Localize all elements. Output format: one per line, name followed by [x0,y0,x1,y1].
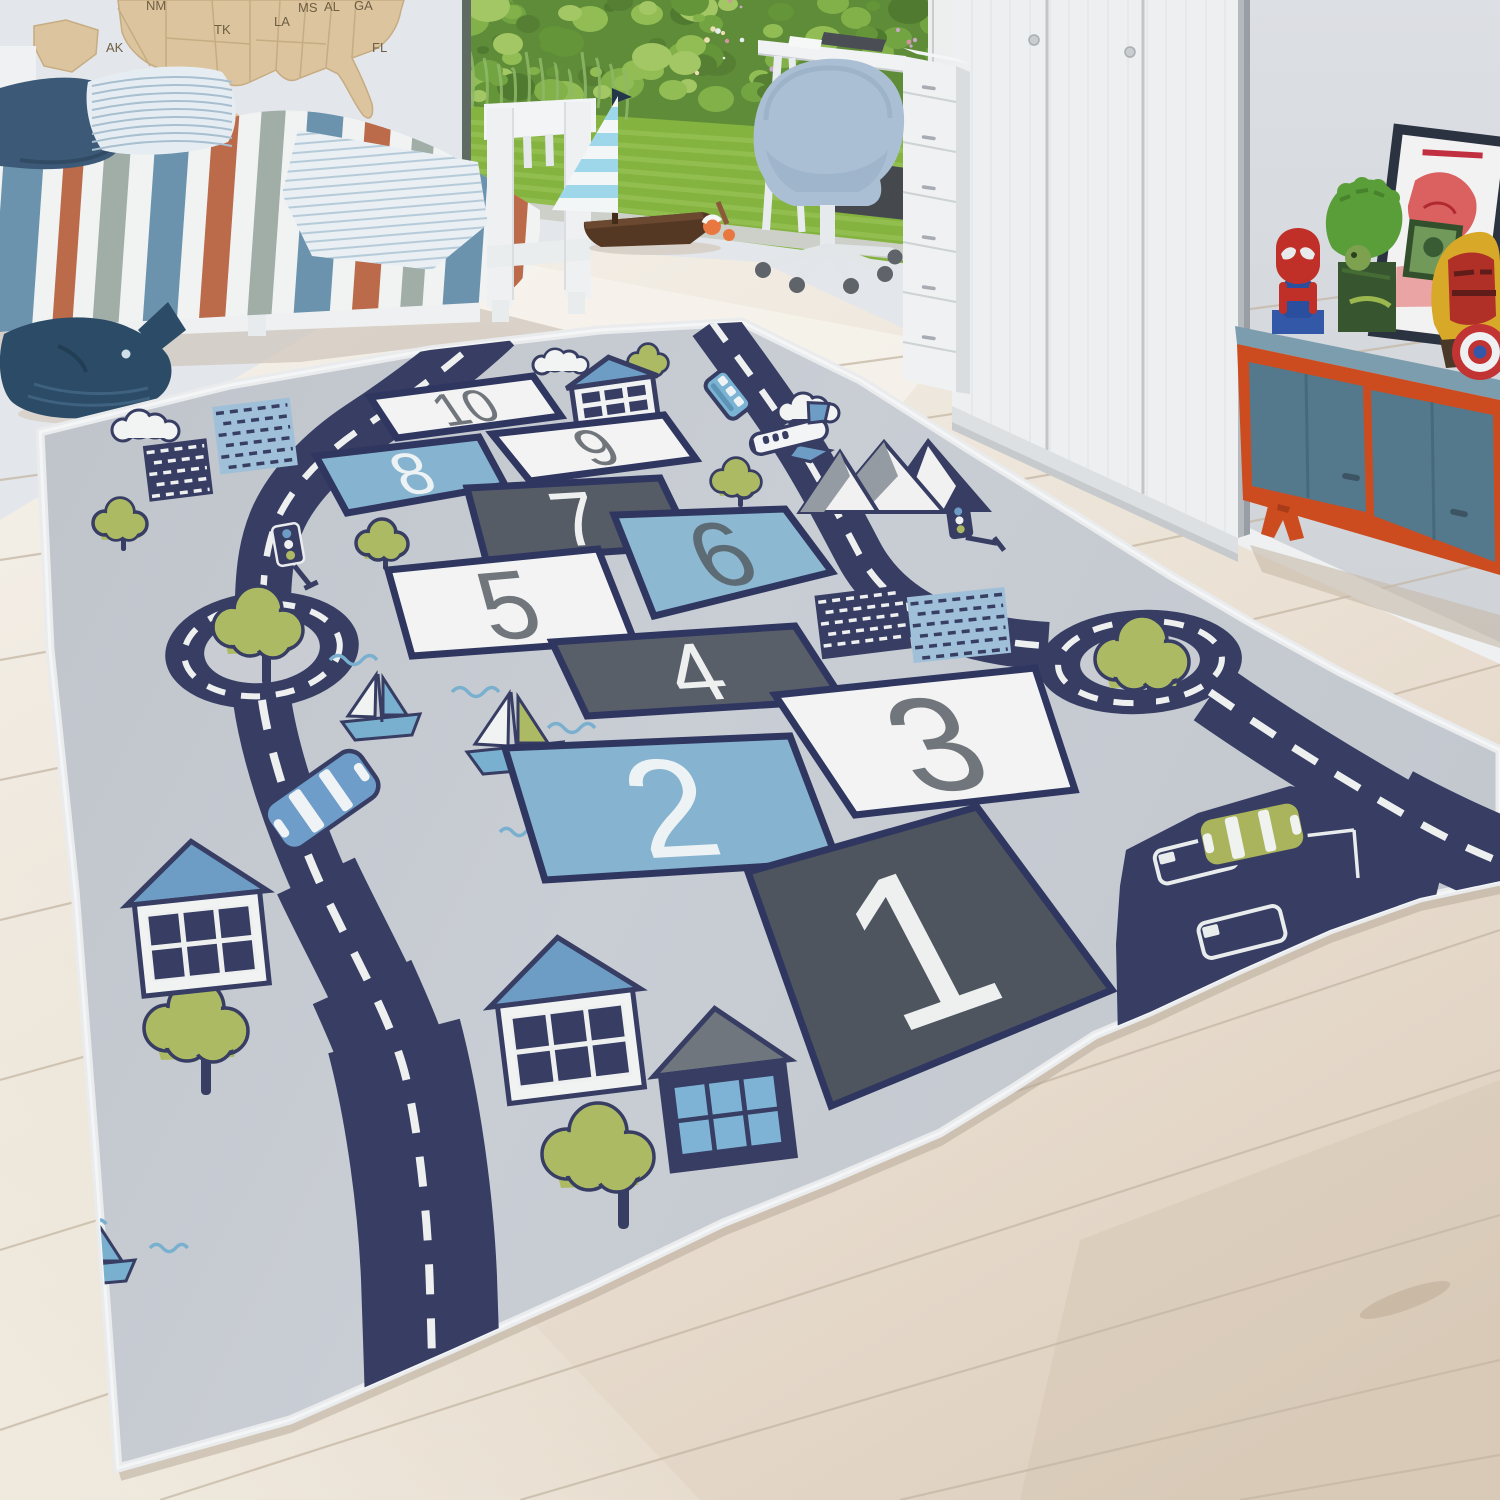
svg-text:GA: GA [354,0,373,13]
svg-text:MS: MS [298,0,318,15]
svg-text:AK: AK [106,40,124,55]
svg-text:NM: NM [146,0,166,13]
svg-text:FL: FL [372,40,387,55]
svg-text:AL: AL [324,0,340,14]
svg-text:TK: TK [214,22,231,37]
svg-text:LA: LA [274,14,290,29]
